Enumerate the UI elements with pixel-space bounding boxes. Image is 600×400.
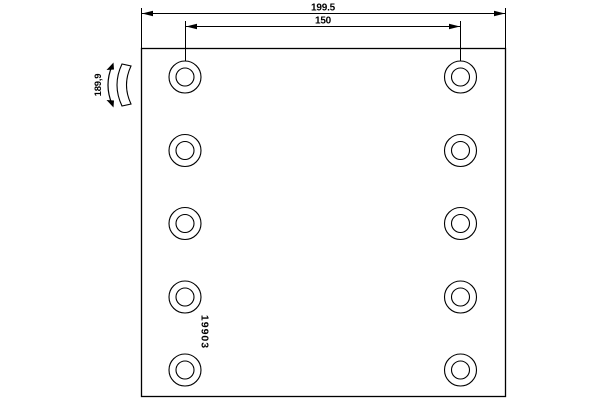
curvature-symbol: 189,9 <box>93 63 131 108</box>
curvature-arrowhead-top-icon <box>107 63 115 71</box>
arrowhead-left-icon <box>186 24 197 29</box>
brake-lining-drawing: 199.5 150 189,9 19903 <box>0 0 600 400</box>
arrowhead-left-icon <box>142 11 153 16</box>
curvature-arrow-arc-icon <box>108 66 112 104</box>
dimension-label-hole-spacing: 150 <box>315 16 332 27</box>
technical-drawing-canvas: 199.5 150 189,9 19903 <box>0 0 600 400</box>
brake-lining-plate <box>142 49 506 397</box>
lining-cross-section-icon <box>117 64 131 106</box>
curvature-arrowhead-bottom-icon <box>107 100 115 108</box>
radius-label: 189,9 <box>93 74 104 97</box>
arrowhead-right-icon <box>449 24 460 29</box>
dimension-label-total-width: 199.5 <box>311 3 336 14</box>
arrowhead-right-icon <box>494 11 505 16</box>
part-number-label: 19903 <box>199 315 211 349</box>
